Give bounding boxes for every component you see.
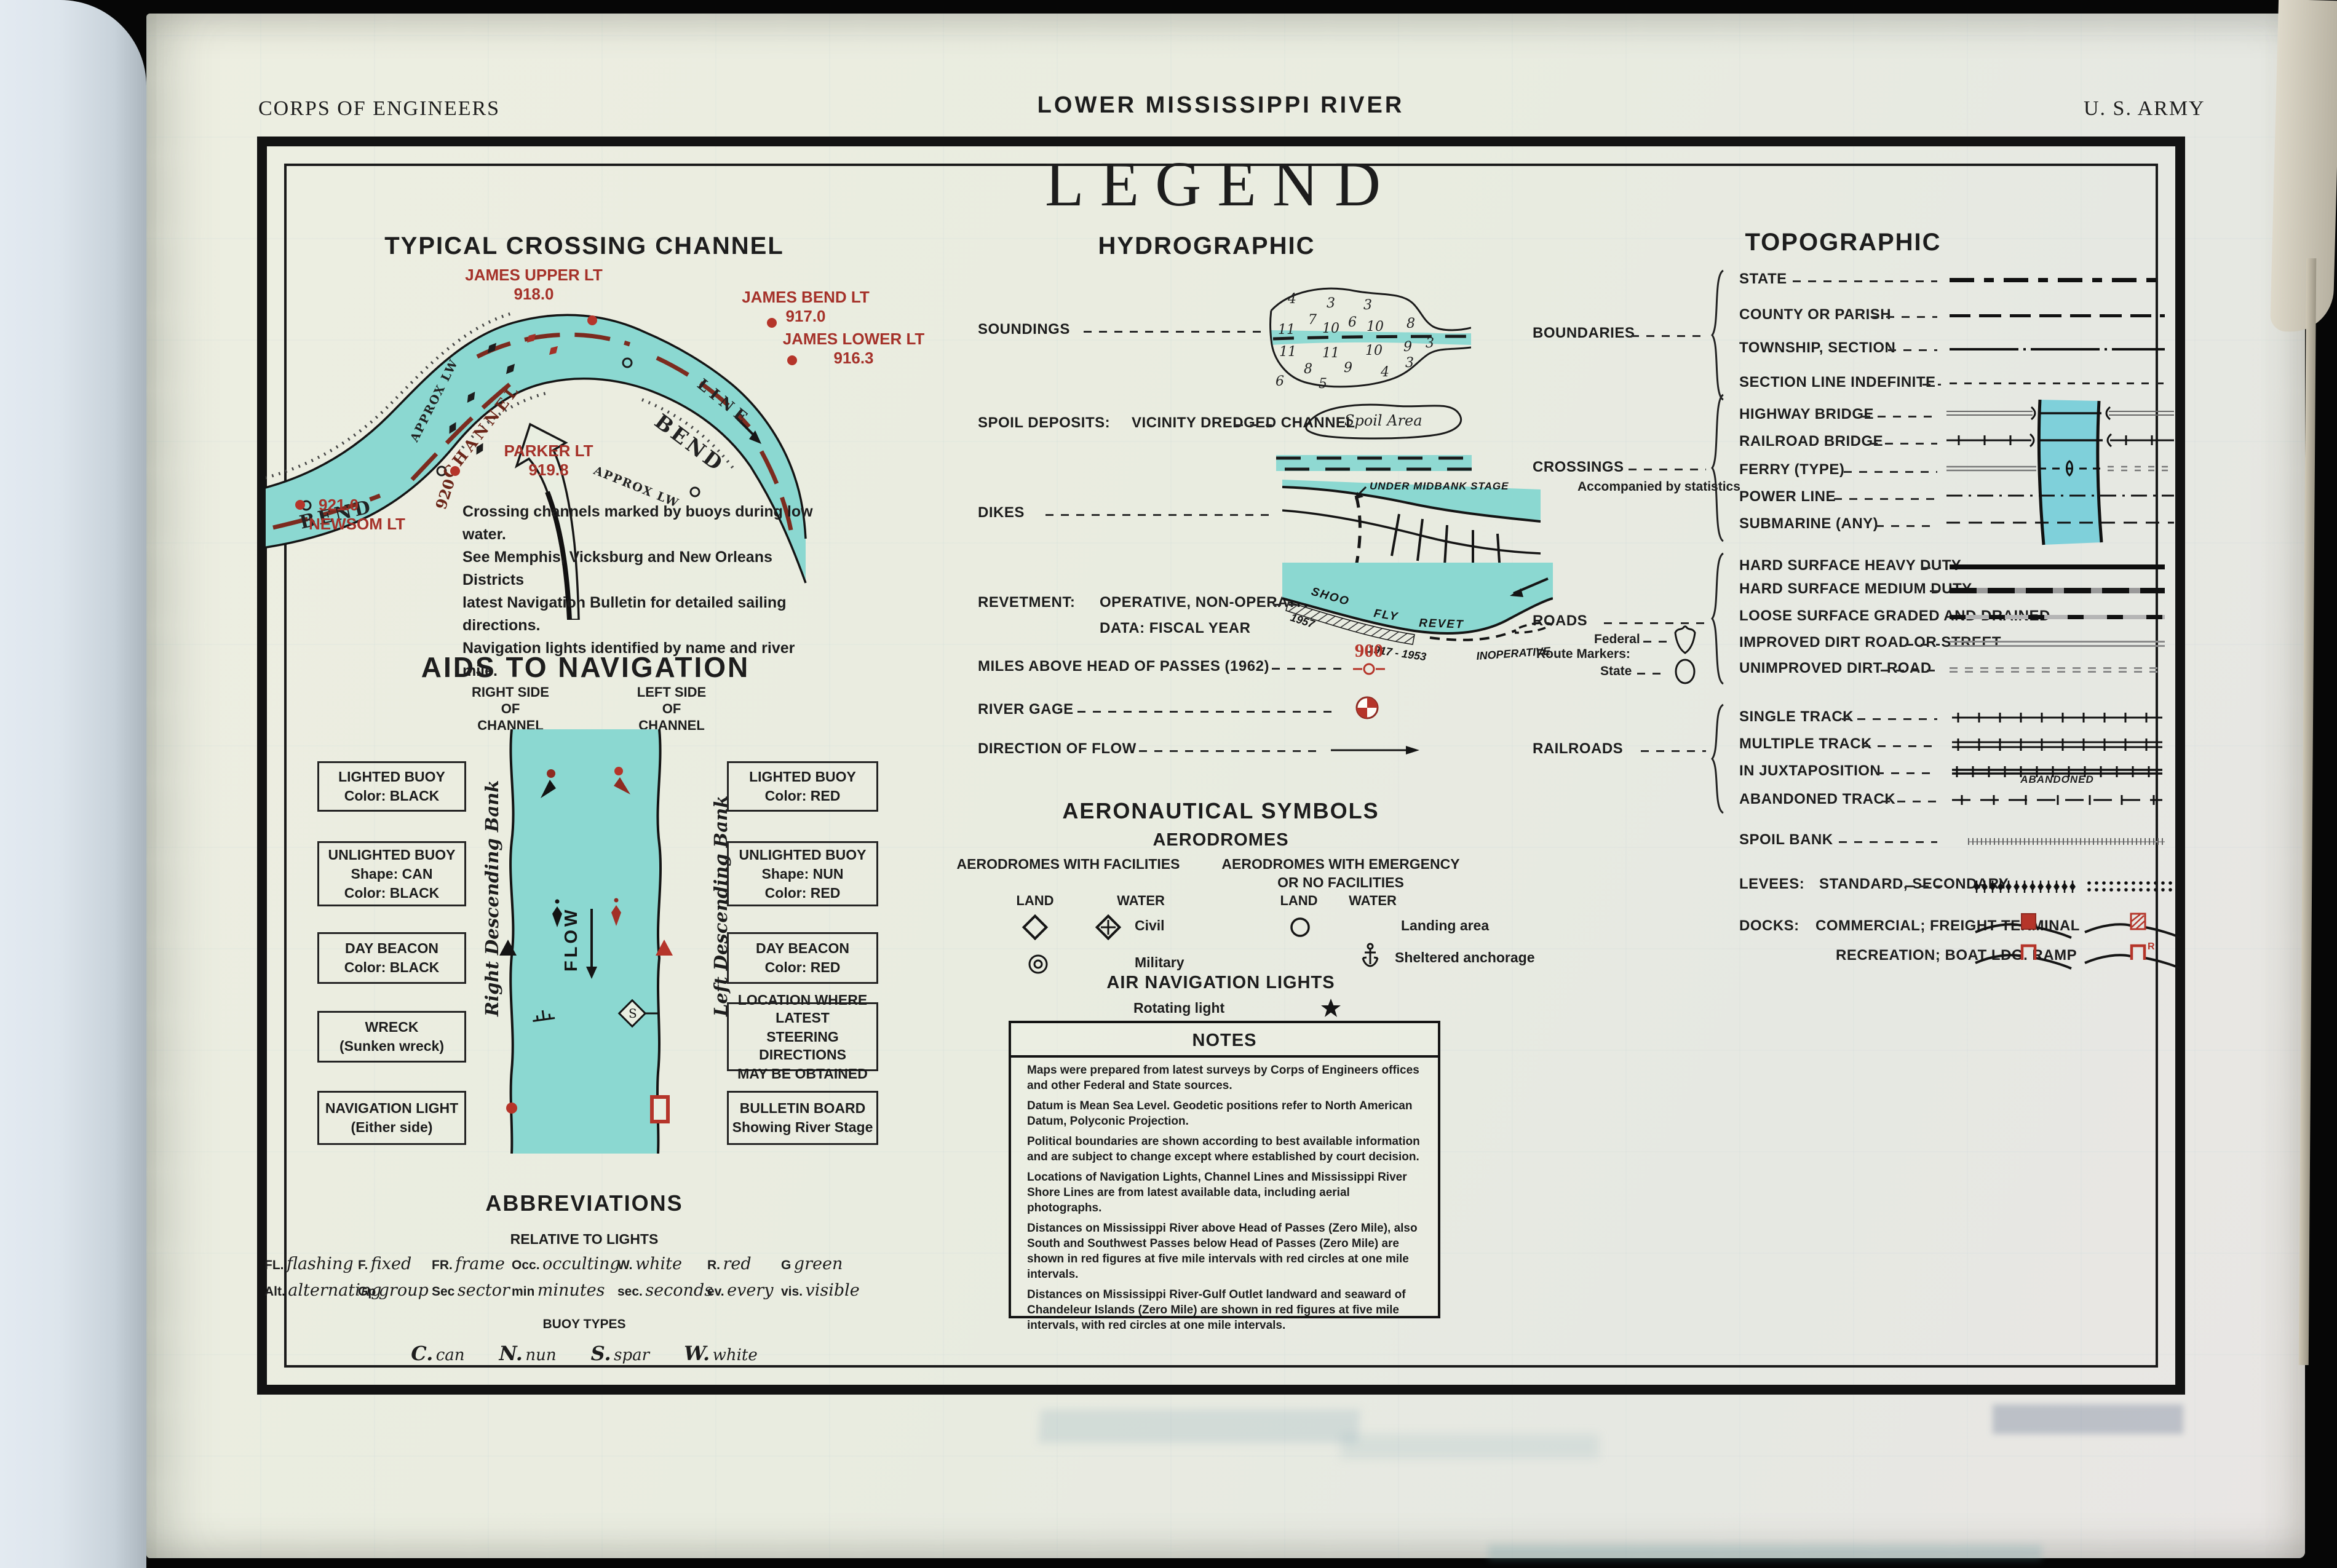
- svg-text:4: 4: [1287, 291, 1296, 307]
- label-direction-of-flow: DIRECTION OF FLOW: [978, 740, 1137, 758]
- header-corps: CORPS OF ENGINEERS: [258, 97, 500, 121]
- label-aerodromes-emergency-1: AERODROMES WITH EMERGENCY: [1221, 856, 1459, 873]
- federal-shield-icon: [1672, 624, 1699, 655]
- sample-dock-commercial: [1974, 909, 2073, 941]
- box-wreck: WRECK(Sunken wreck): [317, 1011, 466, 1063]
- leader-dashes: [1235, 424, 1272, 426]
- direction-of-flow-arrow: [1328, 743, 1421, 758]
- svg-text:8: 8: [1304, 362, 1312, 377]
- label-dikes: DIKES: [978, 504, 1025, 521]
- legend-title: LEGEND: [1045, 148, 1397, 221]
- label-miles-above: MILES ABOVE HEAD OF PASSES (1962): [978, 658, 1269, 675]
- svg-text:3: 3: [1405, 355, 1414, 371]
- heading-buoy-types: BUOY TYPES: [543, 1317, 626, 1332]
- sample-township-line: [1950, 348, 2165, 350]
- svg-text:UNDER MIDBANK STAGE: UNDER MIDBANK STAGE: [1370, 480, 1509, 492]
- svg-text:10: 10: [1365, 343, 1383, 358]
- notes-title-rule: [1011, 1055, 1438, 1058]
- svg-text:10: 10: [1322, 321, 1339, 336]
- box-unlighted-buoy-red: UNLIGHTED BUOYShape: NUNColor: RED: [727, 841, 878, 906]
- emergency-land-symbol: [1288, 915, 1312, 940]
- label-abandoned: ABANDONED: [2020, 774, 2094, 786]
- leader-dashes: [1871, 316, 1937, 318]
- label-rotating-light: Rotating light: [1133, 1000, 1224, 1016]
- item-hard-medium: HARD SURFACE MEDIUM DUTY: [1739, 580, 1972, 598]
- item-railroad-bridge: RAILROAD BRIDGE: [1739, 433, 1883, 450]
- flow-label: FLOW: [561, 907, 581, 972]
- label-james-lower: JAMES LOWER LT916.3: [783, 330, 925, 368]
- notes-title: NOTES: [1192, 1031, 1257, 1051]
- heading-air-navigation-lights: AIR NAVIGATION LIGHTS: [1106, 973, 1335, 993]
- right-side-of-channel: RIGHT SIDEOFCHANNEL: [472, 684, 549, 734]
- item-section-indefinite: SECTION LINE INDEFINITE: [1739, 374, 1936, 391]
- navigation-light-dot: [506, 1103, 517, 1114]
- leader-dashes: [1882, 801, 1940, 802]
- military-symbol: [1026, 952, 1050, 976]
- sample-county-line: [1950, 314, 2165, 317]
- sample-unimproved-dirt: [1950, 667, 2165, 673]
- leader-dashes: [1930, 590, 1942, 592]
- brace-crossings: [1710, 394, 1726, 542]
- civil-land-symbol: [1022, 914, 1049, 941]
- civil-water-symbol: [1095, 914, 1122, 941]
- item-ferry: FERRY (TYPE): [1739, 461, 1844, 478]
- sample-state-line: [1950, 278, 2165, 282]
- label-newsom: 921.0NEWSOM LT: [319, 496, 405, 534]
- leader-dashes: [1905, 885, 1942, 887]
- item-power-line: POWER LINE: [1739, 488, 1836, 505]
- sample-spoil-bank: [1968, 838, 2165, 845]
- word-920: 920: [432, 477, 458, 512]
- book-left-page-edge: [0, 0, 146, 1568]
- svg-text:10: 10: [1367, 319, 1384, 335]
- state-oval-icon: [1672, 655, 1699, 687]
- buoy-types-row: C. can N. nun S. spar W. white: [411, 1342, 758, 1365]
- crossings-art: [1946, 398, 2174, 546]
- label-spoil-bank: SPOIL BANK: [1739, 831, 1833, 849]
- leader-dashes: [1881, 670, 1940, 671]
- box-unlighted-buoy-black: UNLIGHTED BUOYShape: CANColor: BLACK: [317, 841, 466, 906]
- svg-text:8: 8: [1407, 316, 1415, 331]
- heading-abbreviations: ABBREVIATIONS: [485, 1190, 683, 1216]
- item-county-parish: COUNTY OR PARISH: [1739, 306, 1891, 323]
- leader-dashes: [1834, 498, 1937, 500]
- svg-text:3: 3: [1327, 296, 1335, 311]
- river-gage-symbol: [1353, 694, 1381, 722]
- sample-dock-recreation: [1974, 940, 2073, 972]
- leader-dashes: [1839, 841, 1937, 843]
- leader-dashes: [1888, 349, 1937, 351]
- item-single-track: SINGLE TRACK: [1739, 708, 1854, 726]
- label-route-markers: Route Markers:: [1536, 647, 1630, 662]
- box-navigation-light: NAVIGATION LIGHT(Either side): [317, 1091, 466, 1145]
- item-in-juxtaposition: IN JUXTAPOSITION: [1739, 762, 1881, 780]
- light-dot-newsom: [295, 500, 305, 510]
- right-descending-bank: Right Descending Bank: [482, 807, 502, 1016]
- anchor-icon: [1360, 942, 1380, 968]
- leader-dashes: [1793, 280, 1937, 282]
- label-aerodromes-facilities: AERODROMES WITH FACILITIES: [957, 856, 1180, 873]
- heading-relative-to-lights: RELATIVE TO LIGHTS: [510, 1231, 659, 1248]
- svg-text:Spoil Area: Spoil Area: [1344, 412, 1422, 429]
- leader-dashes: [1637, 673, 1668, 675]
- sample-loose-surface: [1950, 615, 2165, 619]
- svg-text:11: 11: [1278, 322, 1295, 338]
- light-dot-james-bend: [767, 318, 777, 328]
- leader-dashes: [1905, 644, 1940, 646]
- label-revetment-data: DATA: FISCAL YEAR: [1100, 620, 1250, 637]
- heading-crossing: TYPICAL CROSSING CHANNEL: [384, 232, 784, 260]
- svg-text:4: 4: [1380, 365, 1389, 380]
- sample-single-track: [1950, 710, 2165, 726]
- label-james-bend: JAMES BEND LT917.0: [742, 288, 870, 326]
- sample-dock-freight: [2084, 909, 2182, 941]
- label-river-gage: RIVER GAGE: [978, 701, 1074, 718]
- header-army: U. S. ARMY: [2084, 97, 2205, 121]
- col-water-1: WATER: [1117, 893, 1165, 909]
- spoil-area-art: Spoil Area: [1296, 394, 1481, 450]
- svg-text:9: 9: [1403, 339, 1412, 355]
- sample-medium-duty: [1950, 588, 2165, 593]
- label-military: Military: [1135, 954, 1184, 971]
- leader-dashes: [1139, 750, 1317, 752]
- leader-dashes: [1842, 718, 1937, 720]
- leader-dashes: [1844, 471, 1937, 473]
- svg-text:R: R: [2148, 941, 2155, 952]
- sample-multiple-track: [1950, 737, 2165, 753]
- heading-aids: AIDS TO NAVIGATION: [421, 651, 750, 684]
- sample-boat-ramp: R: [2084, 940, 2182, 972]
- svg-text:7: 7: [1308, 312, 1317, 328]
- bulletin-board-symbol: [652, 1097, 668, 1122]
- box-lighted-buoy-black: LIGHTED BUOYColor: BLACK: [317, 761, 466, 812]
- heading-hydrographic: HYDROGRAPHIC: [1098, 232, 1315, 260]
- col-land-1: LAND: [1016, 893, 1053, 909]
- leader-dashes: [1631, 335, 1706, 337]
- heading-aerodromes: AERODROMES: [1153, 830, 1288, 850]
- col-water-2: WATER: [1349, 893, 1397, 909]
- item-hard-heavy: HARD SURFACE HEAVY DUTY: [1739, 557, 1961, 574]
- aids-river: S FLOW: [498, 729, 683, 1154]
- item-submarine: SUBMARINE (ANY): [1739, 515, 1878, 533]
- item-state: STATE: [1739, 271, 1787, 288]
- item-highway-bridge: HIGHWAY BRIDGE: [1739, 406, 1874, 423]
- abbrev-table: FL. flashing F. fixed FR. frame Occ. occ…: [264, 1254, 916, 1300]
- svg-text:REVET: REVET: [1419, 617, 1464, 632]
- box-bulletin-board: BULLETIN BOARDShowing River Stage: [727, 1091, 878, 1145]
- label-docks: DOCKS:: [1739, 917, 1799, 935]
- sample-heavy-duty: [1950, 564, 2165, 569]
- box-day-beacon-black: DAY BEACONColor: BLACK: [317, 932, 466, 984]
- soundings-art: 433 76 1110108 11111093 8943 65: [1262, 274, 1471, 409]
- mile-circle-symbol: [1352, 662, 1386, 676]
- label-crossings: CROSSINGS: [1533, 459, 1624, 476]
- label-james-upper: JAMES UPPER LT918.0: [465, 266, 602, 304]
- brace-railroads: [1710, 703, 1726, 814]
- label-spoil-deposits: SPOIL DEPOSITS:: [978, 414, 1110, 432]
- leader-dashes: [1862, 745, 1937, 747]
- label-revetment: REVETMENT:: [978, 594, 1075, 611]
- heading-topographic: TOPOGRAPHIC: [1745, 229, 1941, 256]
- svg-text:6: 6: [1348, 315, 1357, 330]
- item-unimproved-dirt: UNIMPROVED DIRT ROAD: [1739, 660, 1932, 677]
- leader-dashes: [1922, 384, 1941, 386]
- svg-text:3: 3: [1363, 298, 1372, 313]
- leader-dashes: [1629, 469, 1706, 470]
- light-dot-parker: [450, 466, 460, 476]
- svg-text:S: S: [629, 1006, 637, 1021]
- rotating-light-star: [1320, 997, 1342, 1020]
- item-multiple-track: MULTIPLE TRACK: [1739, 735, 1872, 753]
- label-parker: PARKER LT919.8: [504, 441, 593, 480]
- book-right-page-stack: [2270, 0, 2337, 333]
- sample-levee-secondary: [2086, 879, 2178, 894]
- label-landing-area: Landing area: [1401, 917, 1489, 934]
- light-dot-james-lower: [787, 355, 797, 365]
- label-boundaries: BOUNDARIES: [1533, 325, 1635, 342]
- label-civil: Civil: [1135, 917, 1165, 934]
- mile-value: 900: [1355, 639, 1384, 662]
- leader-dashes: [1077, 711, 1336, 713]
- label-sheltered-anchorage: Sheltered anchorage: [1395, 949, 1535, 966]
- svg-text:6: 6: [1276, 374, 1284, 389]
- sample-improved-dirt: [1950, 641, 2165, 647]
- leader-dashes: [1876, 772, 1937, 774]
- brace-boundaries: [1710, 269, 1726, 401]
- sample-indefinite-line: [1950, 382, 2165, 384]
- leader-dashes: [1876, 525, 1937, 527]
- left-side-of-channel: LEFT SIDEOFCHANNEL: [637, 684, 706, 734]
- label-levees: LEVEES:: [1739, 876, 1804, 893]
- label-aerodromes-emergency-2: OR NO FACILITIES: [1277, 874, 1404, 891]
- label-federal: Federal: [1594, 632, 1640, 647]
- col-land-2: LAND: [1280, 893, 1317, 909]
- box-lighted-buoy-red: LIGHTED BUOYColor: RED: [727, 761, 878, 812]
- header-title: LOWER MISSISSIPPI RIVER: [1038, 92, 1405, 119]
- light-dot-james-upper: [587, 315, 597, 325]
- svg-text:3: 3: [1426, 336, 1434, 351]
- svg-text:5: 5: [1319, 376, 1327, 392]
- dredged-channel-band: [1276, 453, 1472, 473]
- label-state-marker: State: [1600, 664, 1632, 679]
- revetment-art: SHOO FLY REVET 1957 1917 - 1953 INOPERAT…: [1282, 563, 1553, 673]
- svg-text:11: 11: [1322, 346, 1339, 361]
- leader-dashes: [1272, 668, 1346, 670]
- leader-dashes: [1643, 641, 1668, 643]
- notes-body: Maps were prepared from latest surveys b…: [1027, 1063, 1426, 1338]
- leader-dashes: [1045, 514, 1273, 516]
- box-day-beacon-red: DAY BEACONColor: RED: [727, 932, 878, 984]
- left-descending-bank: Left Descending Bank: [710, 807, 731, 1016]
- sample-abandoned-track: [1950, 792, 2165, 808]
- sample-levee-standard: [1973, 879, 2077, 894]
- svg-text:11: 11: [1279, 344, 1296, 360]
- leader-dashes: [1641, 750, 1706, 752]
- item-abandoned-track: ABANDONED TRACK: [1739, 791, 1895, 808]
- leader-dashes: [1084, 331, 1268, 333]
- svg-text:9: 9: [1344, 360, 1352, 376]
- leader-dashes: [1922, 567, 1941, 569]
- leader-dashes: [1870, 443, 1937, 445]
- box-steering-directions: LOCATION WHERE LATESTSTEERING DIRECTIONS…: [727, 1002, 878, 1071]
- leader-dashes: [1862, 416, 1937, 418]
- notes-box: NOTES Maps were prepared from latest sur…: [1009, 1021, 1440, 1318]
- label-railroads: RAILROADS: [1533, 740, 1623, 758]
- brace-roads: [1710, 552, 1726, 685]
- scanned-legend-page: CORPS OF ENGINEERS LOWER MISSISSIPPI RIV…: [0, 0, 2337, 1568]
- item-township-section: TOWNSHIP, SECTION: [1739, 339, 1895, 357]
- label-roads: ROADS: [1533, 612, 1587, 630]
- heading-aeronautical: AERONAUTICAL SYMBOLS: [1062, 798, 1379, 824]
- label-soundings: SOUNDINGS: [978, 321, 1070, 338]
